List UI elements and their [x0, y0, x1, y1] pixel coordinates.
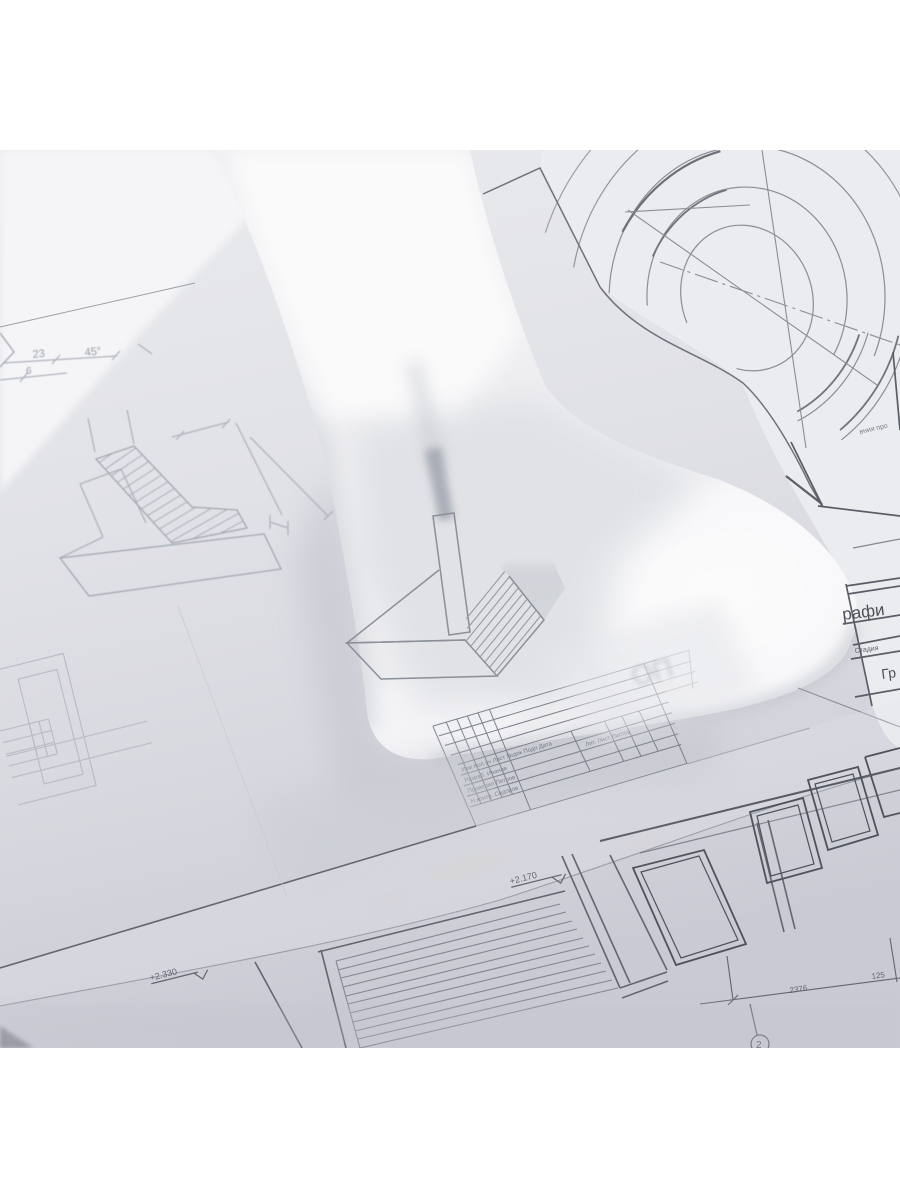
svg-text:Гр: Гр — [880, 664, 897, 682]
svg-text:23: 23 — [32, 348, 45, 361]
svg-text:125: 125 — [871, 970, 886, 981]
svg-text:45°: 45° — [84, 345, 102, 359]
svg-text:6: 6 — [26, 366, 32, 377]
